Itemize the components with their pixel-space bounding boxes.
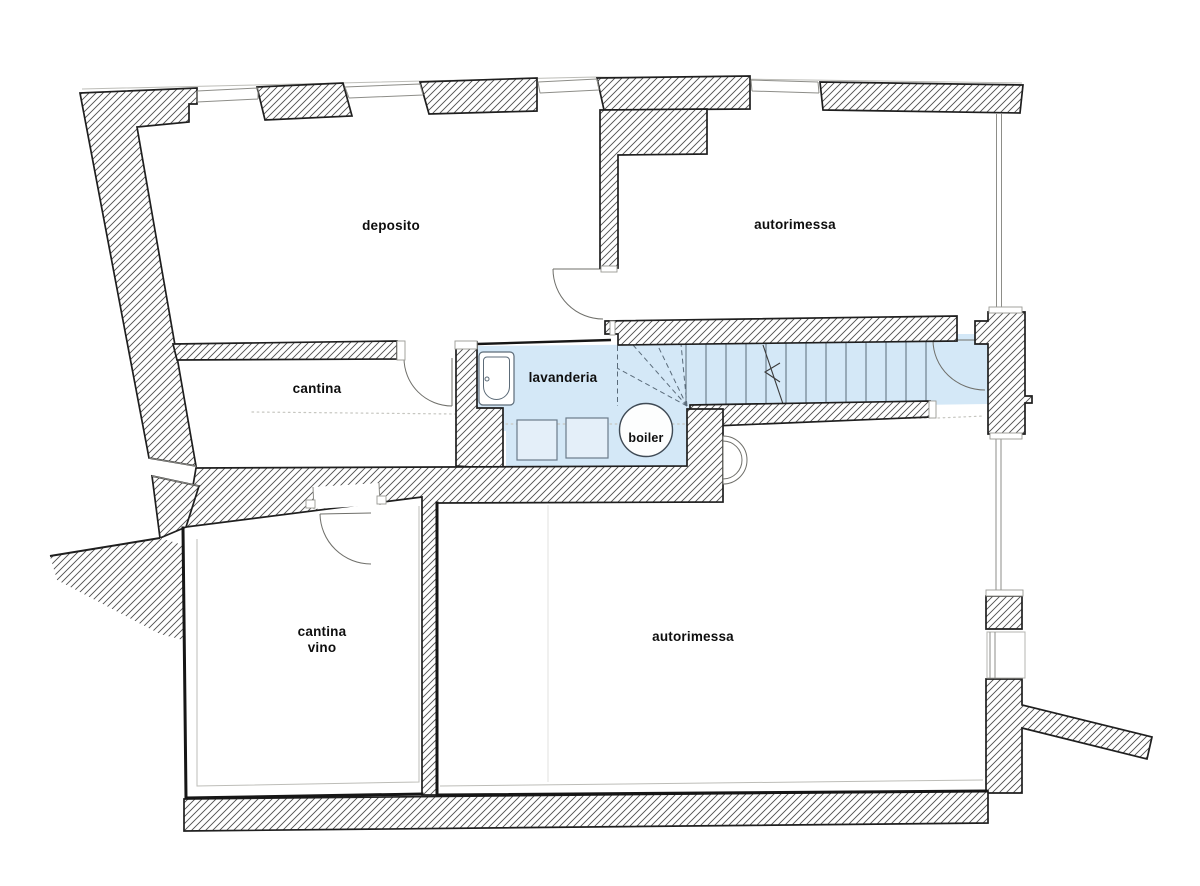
door-cantina-vino xyxy=(320,513,371,564)
door-deposito-cantina xyxy=(404,358,452,406)
wall-cantina-north xyxy=(173,341,397,360)
wall-top-segment-5 xyxy=(820,82,1023,113)
room-label-line: cantina xyxy=(298,624,347,640)
wall-top-segment-2 xyxy=(257,83,352,120)
room-label-cantina: cantina xyxy=(293,381,342,397)
washing-machine-icon xyxy=(517,420,557,460)
wall-top-segment-4 xyxy=(597,76,750,110)
wall-niche xyxy=(723,436,747,484)
window-icon xyxy=(751,80,819,93)
room-label-autorimessa-bottom: autorimessa xyxy=(652,629,734,645)
washing-machine-icon xyxy=(566,418,608,458)
door-deposito-autorimessa xyxy=(553,269,603,319)
room-label-deposito: deposito xyxy=(362,218,420,234)
wall-stair-north xyxy=(605,316,957,345)
window-icon xyxy=(538,79,599,93)
floor-plan-drawing xyxy=(0,0,1200,886)
floor-plan: deposito autorimessa cantina lavanderia … xyxy=(0,0,1200,886)
window-icon xyxy=(197,88,258,102)
wall-left-below-gap xyxy=(152,476,199,538)
room-label-lavanderia: lavanderia xyxy=(529,370,598,386)
window-icon xyxy=(345,84,423,98)
window-east-lower xyxy=(987,632,1025,678)
vino-door-opening xyxy=(313,483,380,509)
room-label-autorimessa-top: autorimessa xyxy=(754,217,836,233)
wall-stair-south xyxy=(690,401,930,427)
wall-top-segment-3 xyxy=(420,78,537,114)
room-label-cantina-vino: cantina vino xyxy=(298,624,347,656)
room-label-boiler: boiler xyxy=(628,430,663,446)
pillar-east-lower-a xyxy=(986,596,1022,629)
wall-divider-deposito-autorimessa xyxy=(600,109,707,268)
bathtub-icon xyxy=(479,352,514,405)
pillar-east-lower-b-angled xyxy=(986,679,1152,793)
wall-left-slanted xyxy=(80,88,197,466)
partition-deposito-lavanderia xyxy=(477,340,611,344)
room-label-line: vino xyxy=(298,640,347,656)
wall-middle-band xyxy=(186,409,723,795)
